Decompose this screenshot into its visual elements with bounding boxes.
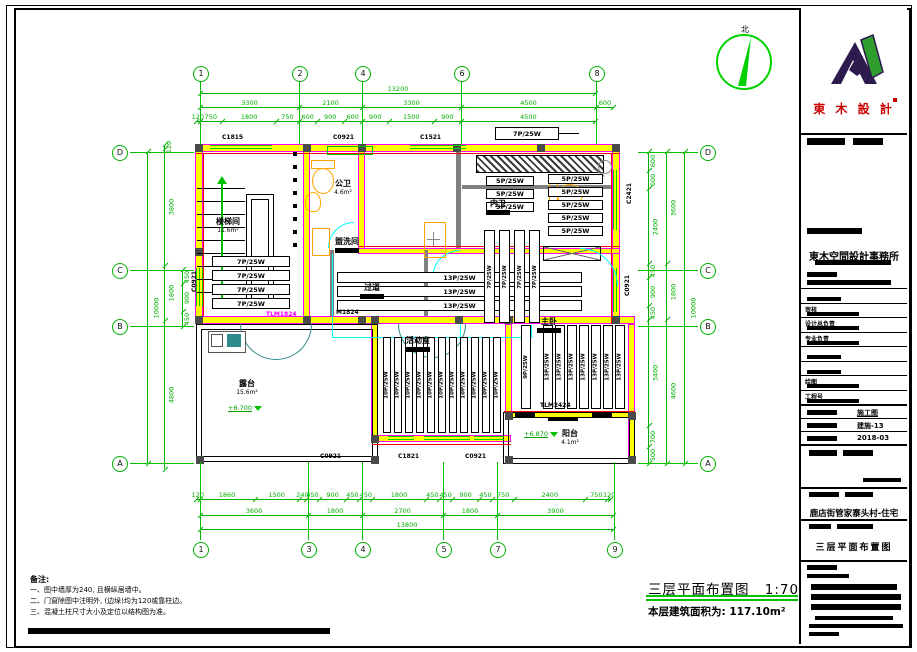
axis-stem [362,82,363,144]
axis-stem [638,270,698,271]
redacted-bar [837,524,873,529]
window-lines [210,145,272,151]
dim-segment: 2400 [648,189,658,264]
dim-value: 900 [441,113,453,121]
personnel-row: 绘图 [801,375,907,390]
radiator: 10P/25W [394,337,402,433]
radiator-wall-tag: 7P/25W [495,127,559,140]
redacted-bar [807,297,841,301]
dim-value: 750 [281,113,293,121]
dim-value: 13800 [397,521,418,529]
redacted-bar [807,341,859,345]
window-lines [410,145,466,151]
radiator-label: 5P/25W [562,188,590,196]
doc-row: 2018-03 [801,431,907,445]
redacted-bar [811,604,901,610]
floor-area-note: 本层建筑面积为: 117.10m² [648,604,785,619]
opening-code: C0921 [333,134,354,141]
window-lines [613,170,619,230]
redacted-bar [811,584,897,590]
dim-segment: 450 [479,490,492,500]
radiator: 7P/25W [529,230,540,323]
redacted-bar [807,410,837,415]
dim-segment: 900 [452,490,479,500]
redacted-bar [809,524,831,529]
sink-bowl [227,334,241,347]
dim-value: 1800 [669,284,677,301]
redacted-bar [809,632,839,636]
red-wall-line [196,153,620,154]
radiator: 7P/25W [212,284,290,295]
radiator-label: 10P/25W [384,371,390,398]
note-item: 一、图中墙厚为240, 且横纵居墙中。 [30,585,186,596]
axis-stem [362,462,363,540]
heating-pipe [531,325,532,338]
axis-stem [596,82,597,144]
dim-segment: 750 [276,112,299,122]
dim-value: 600 [649,174,657,186]
radiator-label: 13P/25W [617,353,623,380]
radiator-label: 13P/25W [605,353,611,380]
baluster-mark [293,204,297,208]
opening-code: TLM1824 [266,311,297,318]
dim-segment: 13800 [200,520,614,530]
room-area: 11.6m² [216,227,240,234]
dim-value: 2700 [394,507,411,515]
dim-segment: 3300 [200,98,299,108]
redacted-bar [815,260,891,265]
dim-value: 3300 [241,99,258,107]
dim-value: 10000 [689,297,697,318]
opening-code: C1521 [420,134,441,141]
room-name: 活动室 [406,335,430,346]
opening-code: C1815 [222,134,243,141]
room-label: 楼梯间11.6m² [216,216,240,234]
axis-stem [130,463,194,464]
redacted-bar [853,138,883,145]
dim-segment: 900 [319,490,346,500]
dim-segment: 1500 [255,490,299,500]
heating-pipe [332,254,333,337]
title-block: 東 木 設 計 東木空間設計事務所 审核设计总负责专业负责绘图工程号 施工图建施… [799,8,907,644]
radiator-label: 5P/25W [562,175,590,183]
axis-bubble: 1 [193,66,209,82]
title-underline-2 [646,599,798,601]
personnel-row: 工程号 [801,390,907,405]
radiator-label: 7P/25W [487,265,493,289]
column [371,316,379,324]
dim-segment: 900 [182,284,192,312]
axis-stem [461,82,462,144]
radiator-label: 5P/25W [562,227,590,235]
dim-segment: 750 [492,490,514,500]
radiator-label: 7P/25W [532,265,538,289]
note-item: 三、混凝土柱尺寸大小及定位以结构图为准。 [30,607,186,618]
redacted-bar [845,492,873,497]
axis-stem [130,152,194,153]
dim-segment: 2400 [514,490,585,500]
project-name: 鹿店街管家寨头村-住宅 [801,507,907,519]
radiator-label: 7P/25W [502,265,508,289]
column [505,412,513,420]
redacted-area [406,347,430,352]
redacted-bar [807,436,837,441]
radiator-label: 7P/25W [237,258,265,266]
axis-bubble: D [112,145,128,161]
room-label: 内卫 [486,198,510,215]
redacted-bar [811,594,901,600]
logo-trademark [893,98,897,102]
logo-box: 東 木 設 計 [801,8,907,135]
opening-code: C0921 [465,453,486,460]
redacted-bar [807,384,859,388]
redacted-bar [807,272,837,277]
dim-value: 1800 [462,507,479,515]
sink-bowl [211,334,223,347]
partition-wall [456,150,461,248]
dim-value: 10000 [152,297,160,318]
dim-value: 600 [301,113,313,121]
dim-segment: 3600 [200,506,308,516]
axis-stem [130,270,194,271]
redacted-bar [809,450,837,456]
room-name: 公卫 [334,178,352,189]
opening-code: C0921 [320,453,341,460]
dim-value: 3400 [651,365,659,382]
dim-value: 900 [326,491,338,499]
dim-segment: 1800 [666,264,676,320]
radiator: 7P/25W [514,230,525,323]
axis-bubble: A [700,456,716,472]
redacted-bar [807,228,862,234]
column [371,456,379,464]
dim-segment: 900 [362,112,389,122]
note-item: 二、门窗除图中注明外, (边垛)均为120或靠柱边。 [30,596,186,607]
axis-bubble: D [700,145,716,161]
redacted-bar [807,565,837,570]
dim-value: 4600 [669,383,677,400]
radiator: 13P/25W [543,325,553,409]
window-lines [424,436,470,442]
axis-bubble: 4 [355,66,371,82]
dim-value: 2100 [322,99,339,107]
dim-segment: 1500 [389,112,434,122]
redacted-area [360,294,384,299]
room-label: 盥洗间 [335,236,359,253]
dim-value: 500 [649,449,657,461]
dim-segment: 450 [182,312,192,326]
window-box [327,146,373,155]
column [612,316,620,324]
axis-stem [299,82,300,144]
room-label: 活动室 [406,335,430,352]
baluster-mark [293,217,297,221]
axis-stem [130,326,194,327]
axis-bubble: 4 [355,542,371,558]
dim-segment: 600 [344,112,362,122]
radiator: 5P/25W [548,226,603,236]
dim-segment: 600 [299,112,317,122]
room-name: 楼梯间 [216,216,240,227]
column [358,316,366,324]
room-name: 露台 [236,378,258,389]
radiator-label: 10P/25W [472,371,478,398]
radiator: 10P/25W [493,337,501,433]
dim-value: 1500 [403,113,420,121]
column [612,144,620,152]
room-name: 阳台 [561,428,579,439]
radiator: 13P/25W [603,325,613,409]
dim-segment: 750 [200,112,223,122]
radiator: 7P/25W [499,230,510,323]
redacted-bar [807,138,845,145]
radiator: 7P/25W [212,256,290,267]
axis-stem [443,462,444,540]
axis-bubble: 3 [301,542,317,558]
room-area: 15.6m² [236,389,258,396]
redacted-bar [807,312,859,316]
room-area: 4.6m² [334,189,352,196]
dim-value: 4800 [167,387,175,404]
dim-segment: 3400 [648,320,658,426]
radiator-label: 10P/25W [461,371,467,398]
dim-segment: 4600 [666,320,676,463]
radiator-label: 13P/25W [443,288,475,296]
separator [801,560,907,562]
radiator-label: 10P/25W [439,371,445,398]
drawing-sheet: 北 下21步7P/25W7P/25W7P/25W7P/25W13P/25W13P… [0,0,917,652]
dim-value: 4500 [520,99,537,107]
radiator: 10P/25W [460,337,468,433]
room-name: 盥洗间 [335,236,359,247]
redacted-bar [843,450,873,456]
dim-value: 900 [183,292,191,304]
title-underline [646,595,798,597]
dim-value: 4500 [520,113,537,121]
radiator: 13P/25W [555,325,565,409]
axis-bubble: B [700,319,716,335]
radiator-label: 13P/25W [443,274,475,282]
dim-segment: 450 [439,490,452,500]
baluster-mark [293,178,297,182]
radiator: 5P/25W [548,200,603,210]
axis-bubble: C [112,263,128,279]
axis-stem [638,463,698,464]
radiator-label: 5P/25W [562,214,590,222]
dim-segment: 900 [434,112,461,122]
axis-stem [200,462,201,540]
doc-value: 施工图 [857,408,878,418]
radiator-label: 9P/25W [523,355,529,379]
dim-segment: 120 [607,490,611,500]
firm-logo-icon [825,32,889,90]
axis-bubble: C [700,263,716,279]
radiator-label: 10P/25W [406,371,412,398]
radiator: 13P/25W [567,325,577,409]
radiator-label: 10P/25W [483,371,489,398]
separator [801,487,907,489]
room-name: 内卫 [486,198,510,209]
axis-stem [614,462,615,540]
elevation-triangle [550,432,558,437]
dim-segment: 1800 [372,490,425,500]
dim-segment: 4500 [461,98,596,108]
column [195,316,203,324]
dim-segment: 900 [317,112,344,122]
washbasin [305,192,321,212]
general-notes: 备注: 一、图中墙厚为240, 且横纵居墙中。二、门窗除图中注明外, (边垛)均… [30,574,186,618]
wall [195,316,635,324]
axis-bubble: 9 [607,542,623,558]
room-label: 主卧 [537,316,561,333]
radiator-label: 13P/25W [545,353,551,380]
dim-segment: 500 [648,447,658,463]
axis-bubble: 6 [454,66,470,82]
axis-stem [200,82,201,144]
dim-value: 700 [649,430,657,442]
opening-code: TLM2424 [540,402,571,409]
radiator: 10P/25W [471,337,479,433]
personnel-row [801,361,907,376]
redacted-bar [815,616,893,620]
wall [505,324,512,419]
dim-segment: 13200 [200,84,596,94]
radiator-label: 7P/25W [237,286,265,294]
room-label: 过道 [360,282,384,299]
axis-bubble: 5 [436,542,452,558]
radiator-label: 10P/25W [494,371,500,398]
column [455,316,463,324]
doc-value: 2018-03 [857,434,889,442]
notes-rule [28,628,330,634]
dim-segment: 1860 [200,490,255,500]
dim-value: 900 [459,491,471,499]
radiator: 10P/25W [383,337,391,433]
separator [801,444,907,446]
doc-row: 建施-13 [801,418,907,432]
radiator: 10P/25W [482,337,490,433]
baluster-mark [293,152,297,156]
dim-value: 900 [324,113,336,121]
axis-bubble: 1 [193,542,209,558]
door-leaf [548,418,578,421]
radiator-label: 10P/25W [428,371,434,398]
dim-segment: 3600 [666,152,676,264]
window-lines [388,436,414,442]
dim-value: 600 [649,155,657,167]
radiator-label: 7P/25W [237,300,265,308]
elevation-triangle [254,406,262,411]
dim-value: 600 [347,113,359,121]
axis-bubble: 2 [292,66,308,82]
column [303,316,311,324]
redacted-bar [807,370,841,374]
dim-value: 750 [590,491,602,499]
room-name: 过道 [360,282,384,293]
redacted-bar [809,492,839,497]
radiator: 13P/25W [579,325,589,409]
dim-value: 1800 [391,491,408,499]
opening-code: C0921 [624,275,631,296]
dim-segment: 3800 [164,149,174,266]
dim-value: 3600 [246,507,263,515]
radiator: 13P/25W [337,300,582,311]
vanity-basin [312,228,330,256]
dim-value: 3600 [669,200,677,217]
door-leaf [515,413,535,418]
dim-value: 900 [369,113,381,121]
room-label: 公卫4.6m² [334,178,352,196]
wall [358,144,365,254]
dim-value: 3800 [167,199,175,216]
column [537,144,545,152]
opening-code: C2421 [626,183,633,204]
radiator-label: 5P/25W [496,190,524,198]
drawing-name: 三层平面布置图 [801,540,907,553]
doc-row: 施工图 [801,404,907,418]
firm-logo-name: 東 木 設 計 [801,100,907,117]
radiator-label: 10P/25W [395,371,401,398]
room-name: 主卧 [537,316,561,327]
radiator: 5P/25W [486,176,534,186]
radiator-label: 13P/25W [557,353,563,380]
axis-stem [308,462,309,540]
dim-segment: 2700 [362,506,443,516]
dim-value: 3900 [547,507,564,515]
opening-code: M1824 [336,309,359,316]
dim-value: 750 [205,113,217,121]
hatched-duct [476,155,604,173]
dim-segment: 10000 [147,152,157,463]
radiator: 7P/25W [484,230,495,323]
dim-value: 3300 [403,99,420,107]
elevation-mark: +6.870 [524,430,558,438]
dim-value: 2400 [651,218,659,235]
column [505,456,513,464]
dim-value: 2400 [542,491,559,499]
toilet-bowl [312,168,334,194]
baluster-mark [293,243,297,247]
room-area: 4.1m² [561,439,579,446]
redacted-bar [807,280,891,285]
red-wall-line [611,154,612,324]
axis-bubble: A [112,456,128,472]
dim-value: 600 [599,99,611,107]
radiator: 9P/25W [521,325,531,409]
column [195,248,203,256]
dim-segment: 1800 [443,506,497,516]
elevation-mark: +6.700 [228,404,262,412]
door-leaf [592,413,612,418]
dim-segment: 600 [596,98,614,108]
baluster-mark [293,230,297,234]
dim-segment: 2100 [299,98,362,108]
radiator-label: 13P/25W [593,353,599,380]
axis-stem [497,462,498,540]
column [628,412,636,420]
stair-route-arrow [217,176,227,184]
redacted-bar [863,478,901,482]
redacted-bar [807,399,859,403]
room-label: 阳台4.1m² [561,428,579,446]
column [628,456,636,464]
radiator: 10P/25W [449,337,457,433]
radiator: 7P/25W [212,298,290,309]
radiator-label: 5P/25W [496,177,524,185]
personnel-row: 设计总负责 [801,317,907,332]
redacted-bar [807,574,849,578]
radiator-label: 10P/25W [417,371,423,398]
